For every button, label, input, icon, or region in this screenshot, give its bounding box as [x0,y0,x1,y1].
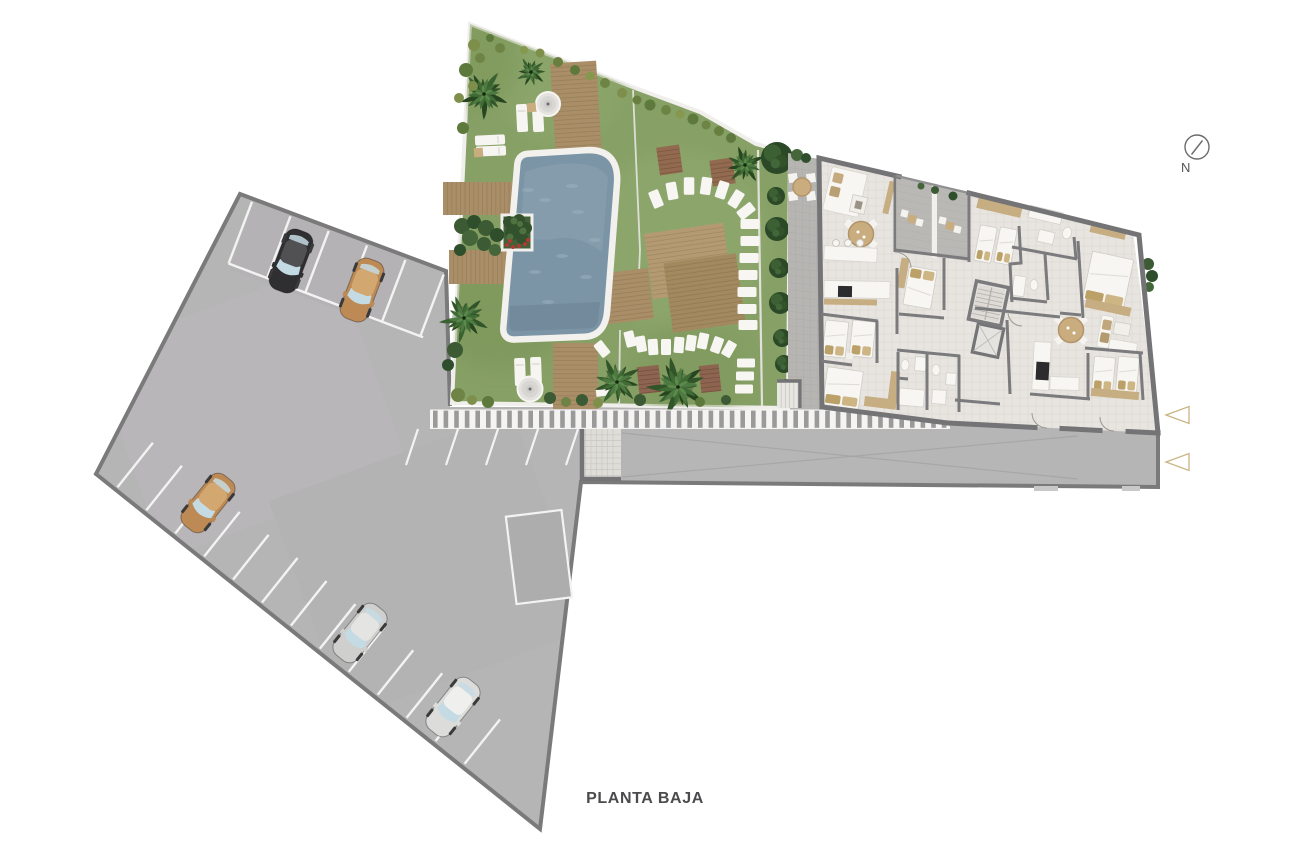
svg-text:N: N [1181,160,1190,175]
svg-text:PLANTA BAJA: PLANTA BAJA [586,790,704,807]
